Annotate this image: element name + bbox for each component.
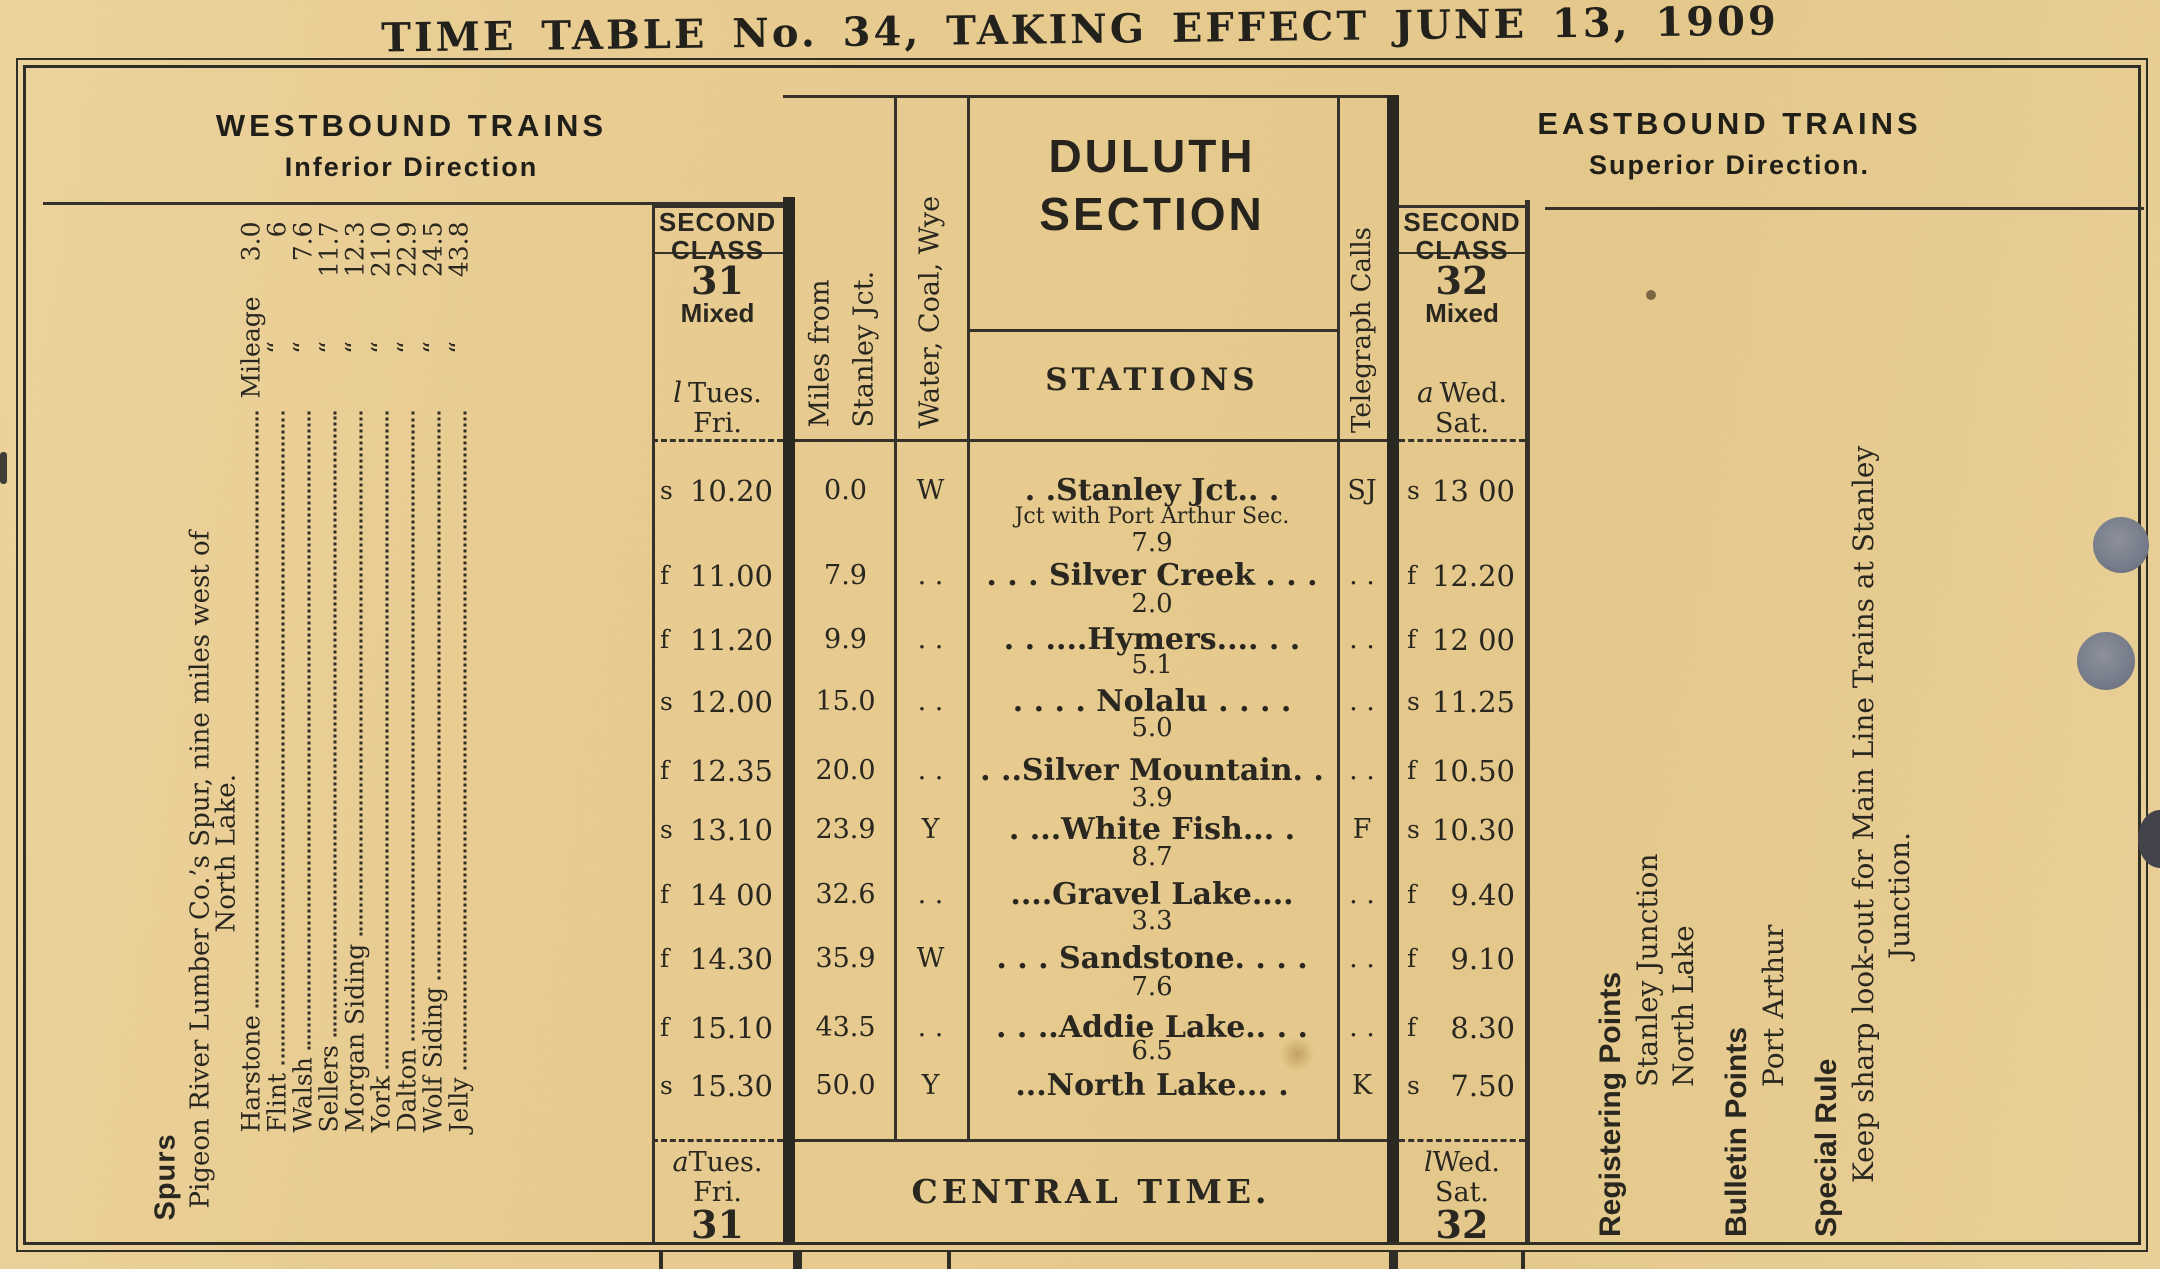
- miles-column-header: Miles from Stanley Jct.: [799, 98, 894, 440]
- spur-name: Wolf Siding: [419, 987, 448, 1132]
- stop-marker: f: [1399, 556, 1416, 596]
- rule: [947, 1250, 951, 1269]
- registering-point: North Lake: [1666, 217, 1702, 1237]
- mileage-label: “: [341, 292, 370, 404]
- spur-name: Morgan Siding: [341, 944, 370, 1133]
- spur-list: Spurs Pigeon River Lumber Co.’s Spur, ni…: [152, 218, 474, 1233]
- mileage-label: “: [315, 292, 344, 404]
- mileage-label: “: [289, 292, 318, 404]
- mileage-value: 11.7: [315, 218, 344, 292]
- dotted-leader: [308, 412, 311, 1050]
- telegraph-call: . .: [1337, 556, 1387, 596]
- leave-marker: l: [673, 376, 682, 409]
- leave-marker: l: [1424, 1147, 1433, 1178]
- telegraph-call: K: [1337, 1066, 1387, 1106]
- telegraph-calls-header: Telegraph Calls: [1337, 97, 1387, 439]
- distance-between: 7.9: [967, 528, 1337, 558]
- train32-time: f12 00: [1399, 620, 1525, 660]
- train31-foot-day1: Tues.: [689, 1147, 763, 1178]
- train31-time: f15.10: [652, 1008, 783, 1048]
- train32-footer-number: 32: [1399, 1202, 1525, 1247]
- train32-time: s7.50: [1399, 1066, 1525, 1106]
- train32-time: f9.40: [1399, 875, 1525, 915]
- time-value: 11.20: [690, 620, 783, 660]
- stations-header: STATIONS: [967, 362, 1337, 398]
- dotted-leader: [334, 412, 337, 1038]
- water-value: . .: [894, 751, 967, 791]
- train31-time: f14 00: [652, 875, 783, 915]
- stop-marker: s: [652, 1066, 673, 1106]
- stop-marker: f: [652, 751, 669, 791]
- train31-day2: Fri.: [693, 408, 742, 439]
- special-rule-label: Special Rule: [1808, 217, 1846, 1237]
- mileage-label: “: [393, 292, 422, 404]
- registering-point: Stanley Junction: [1630, 217, 1666, 1237]
- spacer: [1702, 217, 1718, 1237]
- spur-name: Jelly: [445, 1078, 474, 1133]
- punch-hole: [2077, 632, 2135, 690]
- time-value: 13 00: [1432, 471, 1525, 511]
- time-value: 9.10: [1450, 939, 1525, 979]
- dotted-leader: [360, 412, 363, 936]
- eastbound-heading: EASTBOUND TRAINS: [1545, 106, 2144, 142]
- dotted-leader: [282, 412, 285, 1066]
- telegraph-call: . .: [1337, 682, 1387, 722]
- train32-foot-day1: Wed.: [1433, 1147, 1500, 1178]
- dotted-leader: [386, 412, 389, 1069]
- telegraph-call: F: [1337, 810, 1387, 850]
- mileage-value: 7.6: [289, 218, 318, 292]
- train32-time: f9.10: [1399, 939, 1525, 979]
- rule: [1521, 1250, 1525, 1269]
- mileage-label: “: [367, 292, 396, 404]
- central-time-label: CENTRAL TIME.: [795, 1172, 1387, 1211]
- stop-marker: s: [1399, 682, 1420, 722]
- water-value: . .: [894, 682, 967, 722]
- westbound-subheading: Inferior Direction: [43, 152, 780, 183]
- rule: [659, 1250, 663, 1269]
- time-value: 8.30: [1450, 1008, 1525, 1048]
- water-value: Y: [894, 1066, 967, 1106]
- special-rule-text: Junction.: [1882, 217, 1918, 1237]
- miles-value: 50.0: [797, 1066, 894, 1106]
- train31-time: s12.00: [652, 682, 783, 722]
- dotted-leader: [256, 412, 259, 1008]
- special-rule-text: Keep sharp look-out for Main Line Trains…: [1846, 217, 1882, 1237]
- rule: [793, 1250, 802, 1269]
- stop-marker: f: [1399, 1008, 1416, 1048]
- arrive-marker: a: [673, 1147, 689, 1178]
- distance-between: 8.7: [967, 842, 1337, 872]
- train31-time: f12.35: [652, 751, 783, 791]
- time-value: 15.30: [690, 1066, 783, 1106]
- spur-name: Flint: [263, 1073, 292, 1133]
- mileage-value: 12.3: [341, 218, 370, 292]
- rule: [1545, 207, 2144, 210]
- water-value: . .: [894, 556, 967, 596]
- miles-value: 35.9: [797, 939, 894, 979]
- time-value: 12 00: [1432, 620, 1525, 660]
- spur-name: Sellers: [315, 1045, 344, 1133]
- mileage-value: 22.9: [393, 218, 422, 292]
- mileage-label: “: [263, 292, 292, 404]
- train32-day1: Wed.: [1440, 378, 1507, 409]
- rule: [652, 1139, 783, 1142]
- time-value: 13.10: [690, 810, 783, 850]
- mileage-value: 24.5: [419, 218, 448, 292]
- miles-value: 0.0: [797, 471, 894, 511]
- spur-name: Harstone: [237, 1015, 266, 1132]
- miles-value: 7.9: [797, 556, 894, 596]
- miles-header-line2: Stanley Jct.: [843, 98, 887, 440]
- dotted-leader: [438, 412, 441, 980]
- eastbound-subheading: Superior Direction.: [1545, 150, 2144, 181]
- distance-between: 5.1: [967, 650, 1337, 680]
- telegraph-call: . .: [1337, 620, 1387, 660]
- train31-days: lTues.Fri.: [652, 378, 783, 439]
- station-name: ...North Lake... .: [967, 1066, 1337, 1106]
- water-header-text: Water, Coal, Wye: [915, 196, 946, 439]
- spur-name: Dalton: [393, 1048, 422, 1132]
- arrive-marker: a: [1417, 376, 1434, 409]
- time-value: 11.00: [690, 556, 783, 596]
- section-title-line2: SECTION: [1039, 188, 1264, 240]
- spur-name: York: [367, 1076, 396, 1132]
- timetable-frame: WESTBOUND TRAINS Inferior Direction EAST…: [16, 58, 2148, 1252]
- miles-value: 9.9: [797, 620, 894, 660]
- stop-marker: f: [1399, 939, 1416, 979]
- telegraph-call: . .: [1337, 875, 1387, 915]
- stop-marker: s: [1399, 471, 1420, 511]
- mileage-value: 3.0: [237, 218, 266, 292]
- time-value: 14 00: [690, 875, 783, 915]
- time-value: 10.30: [1432, 810, 1525, 850]
- mileage-label: “: [419, 292, 448, 404]
- train32-time: s10.30: [1399, 810, 1525, 850]
- rule: [795, 1139, 1387, 1142]
- train31-service: Mixed: [652, 298, 783, 329]
- water-value: Y: [894, 810, 967, 850]
- mileage-label: “: [445, 292, 474, 404]
- scan-blemish: [0, 452, 7, 484]
- bulletin-point: Port Arthur: [1756, 217, 1792, 1237]
- water-value: . .: [894, 620, 967, 660]
- spurs-label: Spurs: [152, 218, 180, 1221]
- train31-time: s10.20: [652, 471, 783, 511]
- stop-marker: f: [652, 939, 669, 979]
- rule: [1389, 1250, 1398, 1269]
- train32-service: Mixed: [1399, 298, 1525, 329]
- water-value: W: [894, 939, 967, 979]
- rule: [1525, 200, 1530, 1242]
- punch-hole: [2093, 517, 2149, 573]
- scan-stain: [1278, 1038, 1316, 1070]
- time-value: 10.50: [1432, 751, 1525, 791]
- stop-marker: s: [1399, 810, 1420, 850]
- distance-between: 3.3: [967, 906, 1337, 936]
- rule: [652, 439, 783, 442]
- water-value: . .: [894, 875, 967, 915]
- train31-number: 31: [652, 258, 783, 303]
- telegraph-call: . .: [1337, 751, 1387, 791]
- train32-days: aWed.Sat.: [1399, 378, 1525, 439]
- train32-time: s11.25: [1399, 682, 1525, 722]
- stop-marker: f: [1399, 875, 1416, 915]
- dotted-leader: [412, 412, 415, 1041]
- miles-value: 43.5: [797, 1008, 894, 1048]
- time-value: 9.40: [1450, 875, 1525, 915]
- miles-value: 32.6: [797, 875, 894, 915]
- distance-between: 7.6: [967, 972, 1337, 1002]
- train31-time: s13.10: [652, 810, 783, 850]
- train32-time: s13 00: [1399, 471, 1525, 511]
- stop-marker: f: [1399, 620, 1416, 660]
- stop-marker: s: [652, 682, 673, 722]
- telegraph-call: . .: [1337, 1008, 1387, 1048]
- water-coal-wye-header: Water, Coal, Wye: [894, 97, 967, 439]
- westbound-heading: WESTBOUND TRAINS: [43, 108, 780, 144]
- stop-marker: s: [1399, 1066, 1420, 1106]
- stop-marker: f: [652, 620, 669, 660]
- scan-blemish: [1646, 290, 1656, 300]
- mileage-value: 43.8: [445, 218, 474, 292]
- train31-time: f11.00: [652, 556, 783, 596]
- train31-footer-number: 31: [652, 1202, 783, 1247]
- spacer: [1792, 217, 1808, 1237]
- time-value: 15.10: [690, 1008, 783, 1048]
- spur-item: Jelly“43.8: [448, 218, 474, 1233]
- stop-marker: s: [652, 471, 673, 511]
- station-note: Jct with Port Arthur Sec.: [957, 504, 1347, 530]
- registering-points-label: Registering Points: [1592, 217, 1630, 1237]
- stop-marker: f: [1399, 751, 1416, 791]
- train31-footer-days: aTues.Fri.: [652, 1148, 783, 1208]
- stop-marker: f: [652, 875, 669, 915]
- time-value: 12.35: [690, 751, 783, 791]
- table-row: s15.30 50.0 Y ...North Lake... . K s7.50: [652, 1066, 1525, 1106]
- telegraph-call: . .: [1337, 939, 1387, 979]
- train31-class-label: SECOND CLASS: [652, 208, 783, 264]
- rule: [1399, 439, 1525, 442]
- time-value: 11.25: [1432, 682, 1525, 722]
- train31-day1: Tues.: [688, 378, 762, 409]
- mileage-value: 21.0: [367, 218, 396, 292]
- stop-marker: f: [652, 1008, 669, 1048]
- miles-value: 23.9: [797, 810, 894, 850]
- train31-time: s15.30: [652, 1066, 783, 1106]
- mileage-value: 6: [263, 218, 292, 292]
- time-value: 12.20: [1432, 556, 1525, 596]
- train32-time: f8.30: [1399, 1008, 1525, 1048]
- train32-class-label: SECOND CLASS: [1399, 208, 1525, 264]
- eastbound-notes: Registering Points Stanley Junction Nort…: [1592, 217, 2002, 1237]
- train31-time: f14.30: [652, 939, 783, 979]
- rule: [967, 329, 1337, 332]
- train32-day2: Sat.: [1435, 408, 1489, 439]
- train32-footer-days: lWed.Sat.: [1399, 1148, 1525, 1208]
- train31-time: f11.20: [652, 620, 783, 660]
- miles-header-line1: Miles from: [799, 98, 843, 440]
- miles-value: 20.0: [797, 751, 894, 791]
- bulletin-points-label: Bulletin Points: [1718, 217, 1756, 1237]
- distance-between: 3.9: [967, 783, 1337, 813]
- train32-time: f12.20: [1399, 556, 1525, 596]
- dotted-leader: [464, 412, 467, 1070]
- telegraph-header-text: Telegraph Calls: [1347, 227, 1377, 439]
- stop-marker: f: [652, 556, 669, 596]
- train32-number: 32: [1399, 258, 1525, 303]
- time-value: 10.20: [690, 471, 783, 511]
- distance-between: 2.0: [967, 589, 1337, 619]
- water-value: . .: [894, 1008, 967, 1048]
- mileage-label: Mileage: [237, 292, 266, 404]
- section-title-line1: DULUTH: [1048, 130, 1255, 182]
- time-value: 14.30: [690, 939, 783, 979]
- miles-value: 15.0: [797, 682, 894, 722]
- section-title: DULUTHSECTION: [967, 128, 1337, 243]
- spur-intro-line1: Pigeon River Lumber Co.’s Spur, nine mil…: [188, 218, 214, 1233]
- scanned-timetable-page: { "title": "TIME TABLE No. 34, TAKING EF…: [0, 0, 2160, 1269]
- spur-name: Walsh: [289, 1057, 318, 1132]
- stop-marker: s: [652, 810, 673, 850]
- time-value: 7.50: [1450, 1066, 1525, 1106]
- train32-time: f10.50: [1399, 751, 1525, 791]
- time-value: 12.00: [690, 682, 783, 722]
- rule: [1399, 1139, 1525, 1142]
- distance-between: 5.0: [967, 713, 1337, 743]
